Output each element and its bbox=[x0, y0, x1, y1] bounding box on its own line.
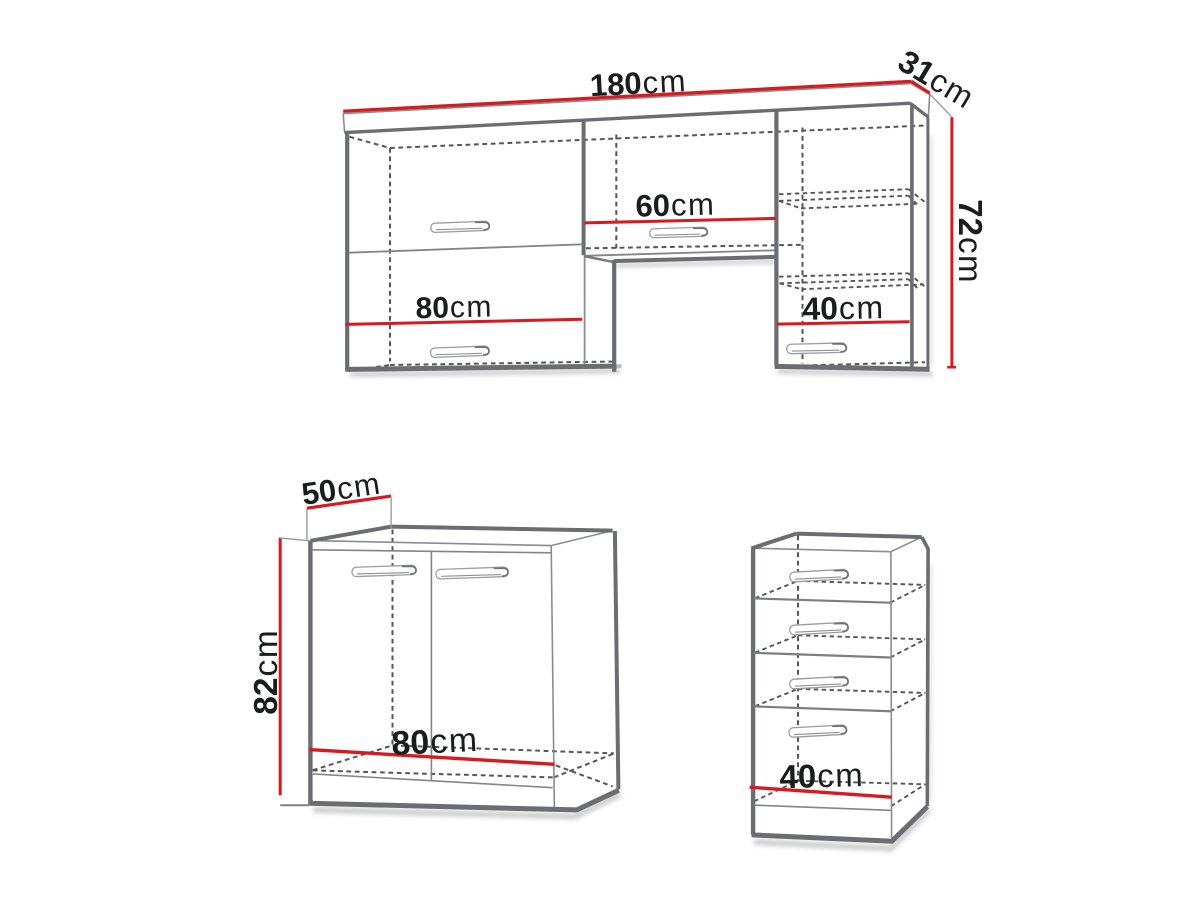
svg-text:80cm: 80cm bbox=[391, 721, 480, 763]
svg-text:40cm: 40cm bbox=[779, 756, 865, 795]
svg-text:180cm: 180cm bbox=[589, 63, 688, 103]
svg-text:82cm: 82cm bbox=[248, 629, 285, 715]
svg-text:72cm: 72cm bbox=[952, 199, 989, 284]
svg-text:40cm: 40cm bbox=[802, 289, 885, 327]
svg-text:60cm: 60cm bbox=[635, 187, 716, 224]
svg-text:80cm: 80cm bbox=[415, 290, 493, 325]
